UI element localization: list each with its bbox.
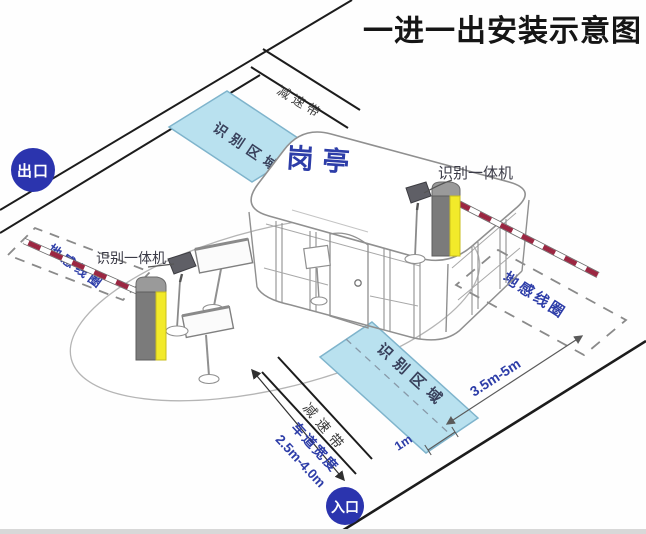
entrance-badge: 入口 (326, 487, 364, 525)
booth-label: 岗亭 (286, 142, 360, 178)
zone-to-gate-dimension: 3.5m-5m (447, 336, 582, 424)
exit-speed-bump: 减速带 (251, 49, 360, 128)
exit-badge-text: 出口 (17, 162, 49, 180)
installation-diagram: 减速带 识别区域 减速带 识别区域 地感线圈 (0, 0, 646, 534)
bottom-edge-strip (0, 529, 646, 534)
page-title: 一进一出安装示意图 (363, 14, 642, 48)
entrance-badge-text: 入口 (331, 499, 359, 515)
entrance-camera-label: 识别一体机 (438, 165, 513, 182)
diagram-canvas: 减速带 识别区域 减速带 识别区域 地感线圈 (0, 0, 646, 534)
exit-badge: 出口 (11, 148, 55, 192)
exit-camera-label: 识别一体机 (96, 251, 166, 267)
exit-camera-callout: 识别一体机 (96, 251, 174, 267)
exit-speed-bump-label: 减速带 (274, 83, 325, 122)
entrance-ground-loop: 地感线圈 (456, 250, 626, 355)
